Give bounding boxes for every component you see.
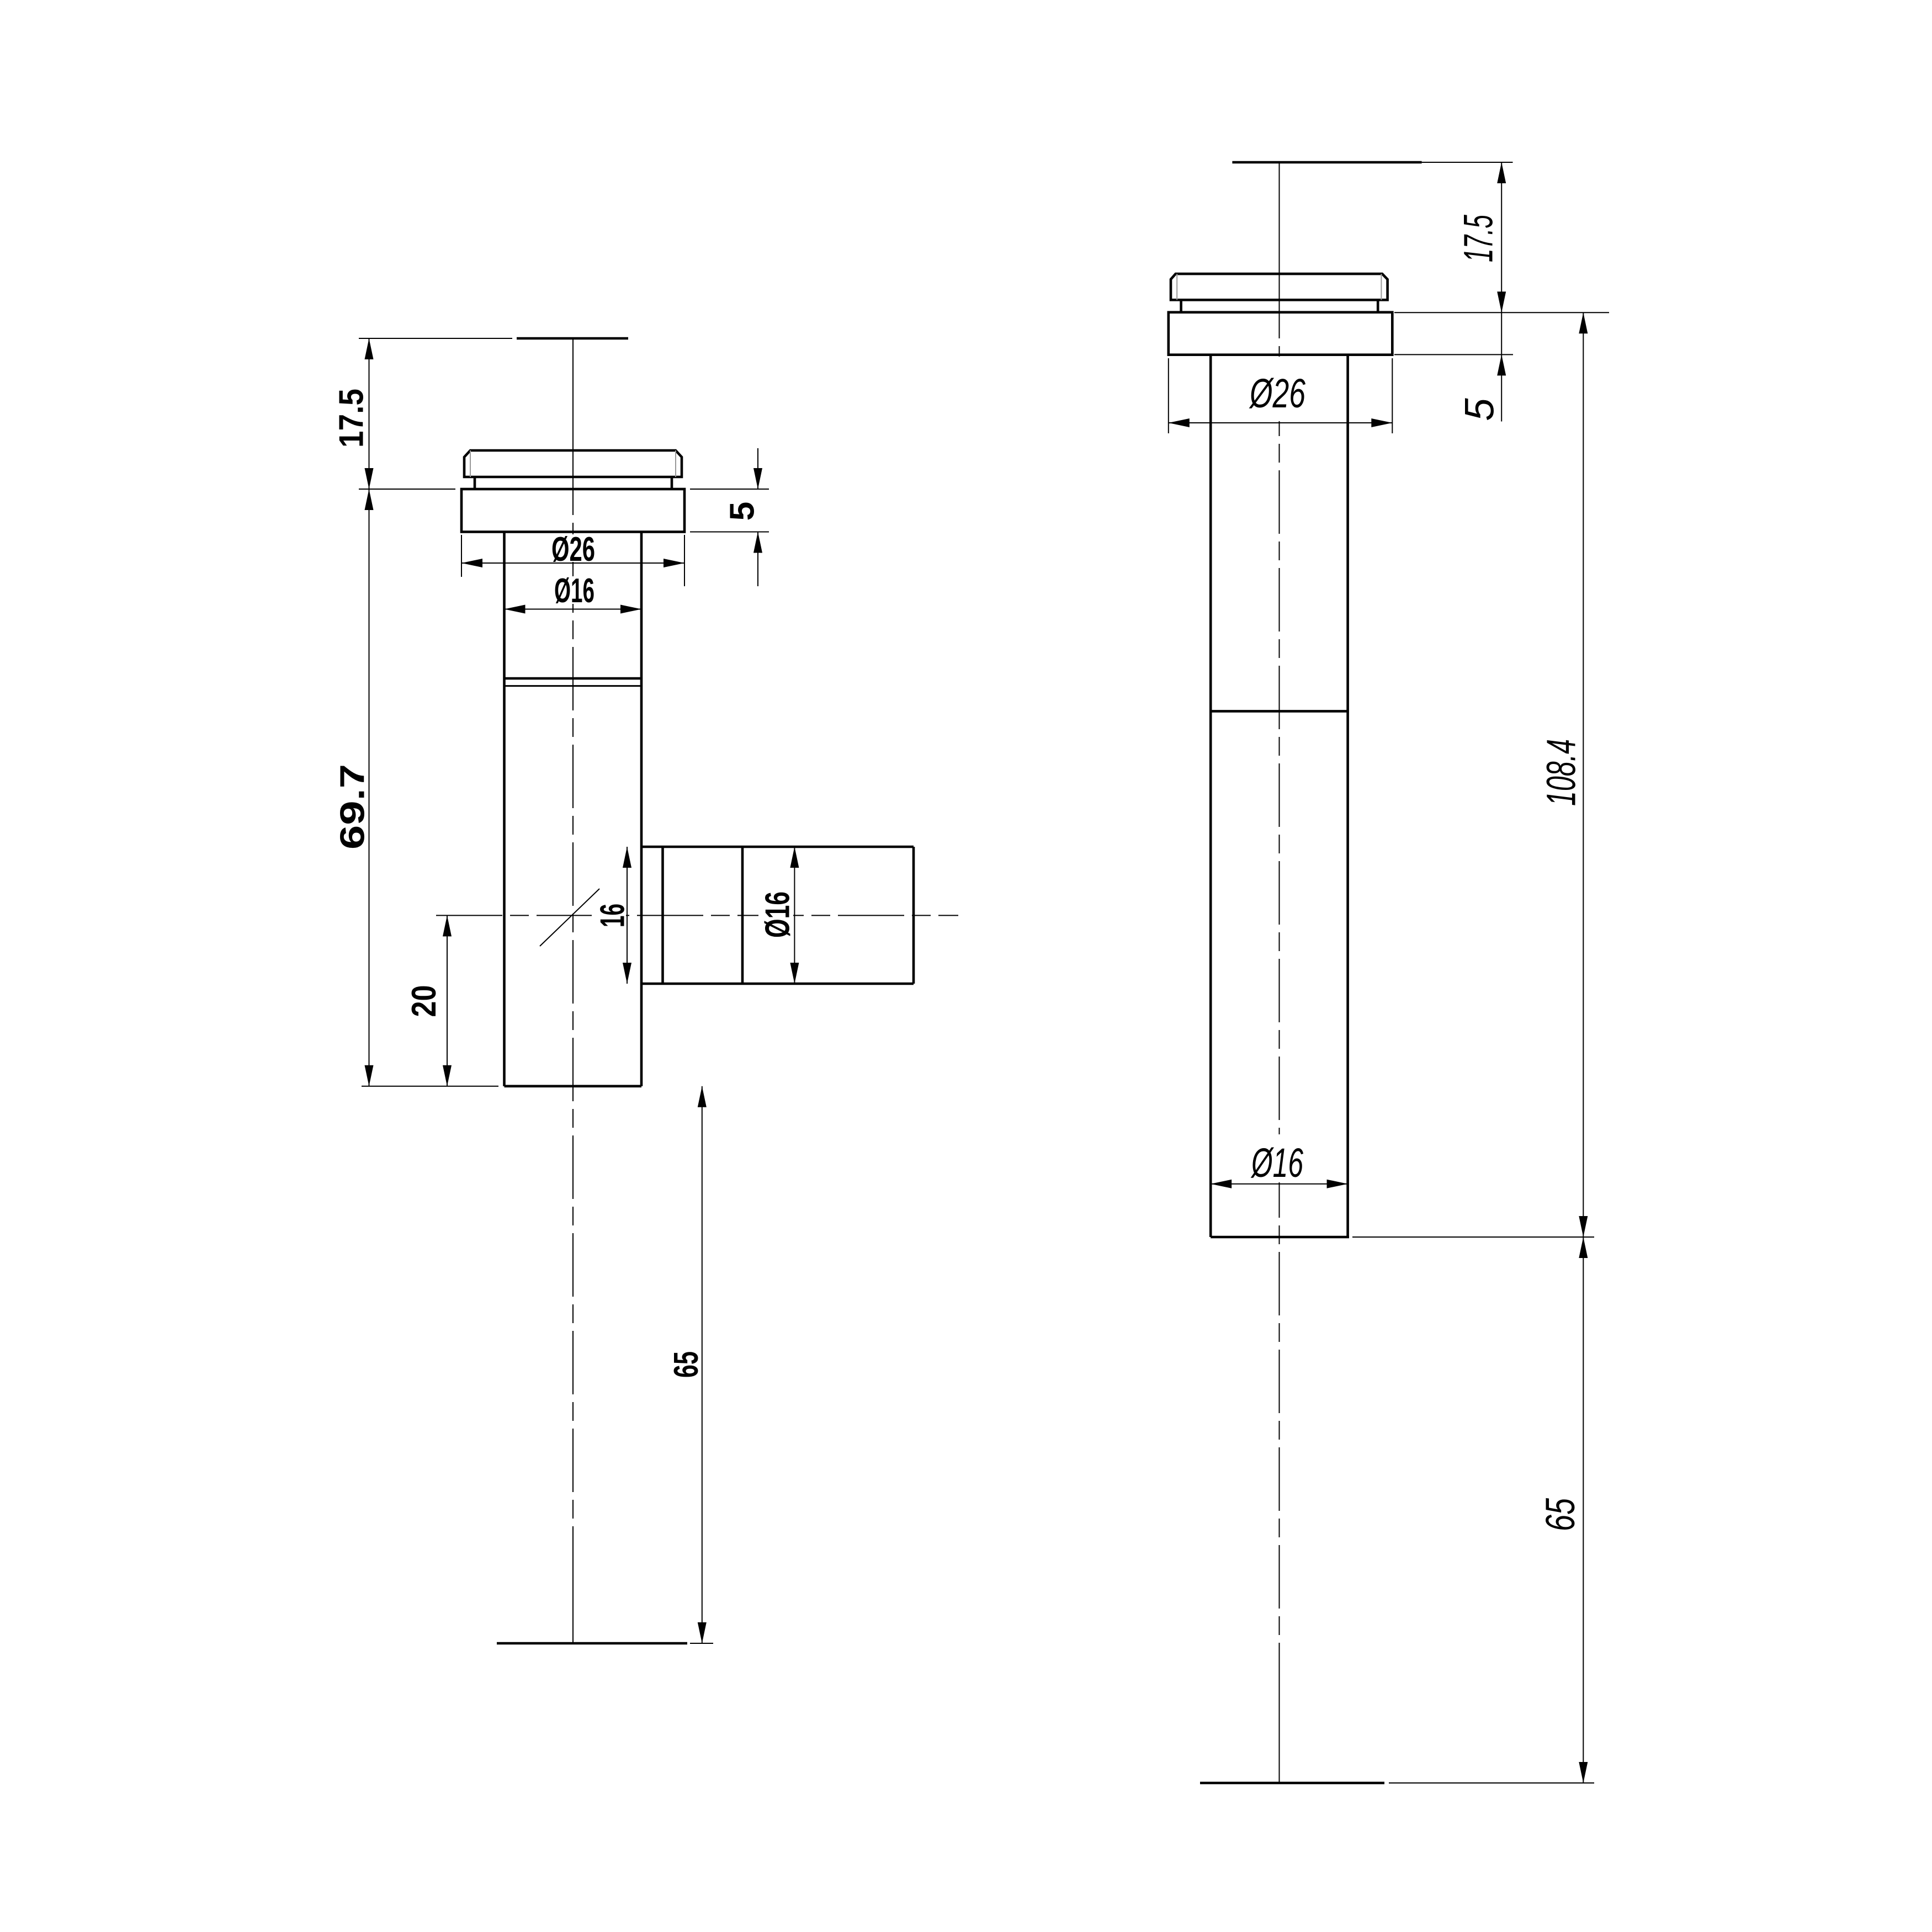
svg-text:Ø16: Ø16 xyxy=(759,891,797,938)
svg-text:5: 5 xyxy=(724,502,762,521)
svg-text:Ø16: Ø16 xyxy=(1250,1140,1304,1186)
svg-text:5: 5 xyxy=(1457,398,1503,421)
svg-text:Ø16: Ø16 xyxy=(554,572,595,610)
svg-text:16: 16 xyxy=(594,904,632,927)
svg-text:Ø26: Ø26 xyxy=(551,530,595,569)
svg-text:65: 65 xyxy=(667,1351,705,1378)
svg-text:69.7: 69.7 xyxy=(334,764,372,850)
svg-text:108.4: 108.4 xyxy=(1538,739,1584,806)
svg-text:17.5: 17.5 xyxy=(333,389,371,448)
svg-text:65: 65 xyxy=(1537,1498,1583,1531)
svg-text:Ø26: Ø26 xyxy=(1249,370,1306,416)
svg-text:17.5: 17.5 xyxy=(1456,214,1501,262)
svg-text:20: 20 xyxy=(405,985,443,1017)
